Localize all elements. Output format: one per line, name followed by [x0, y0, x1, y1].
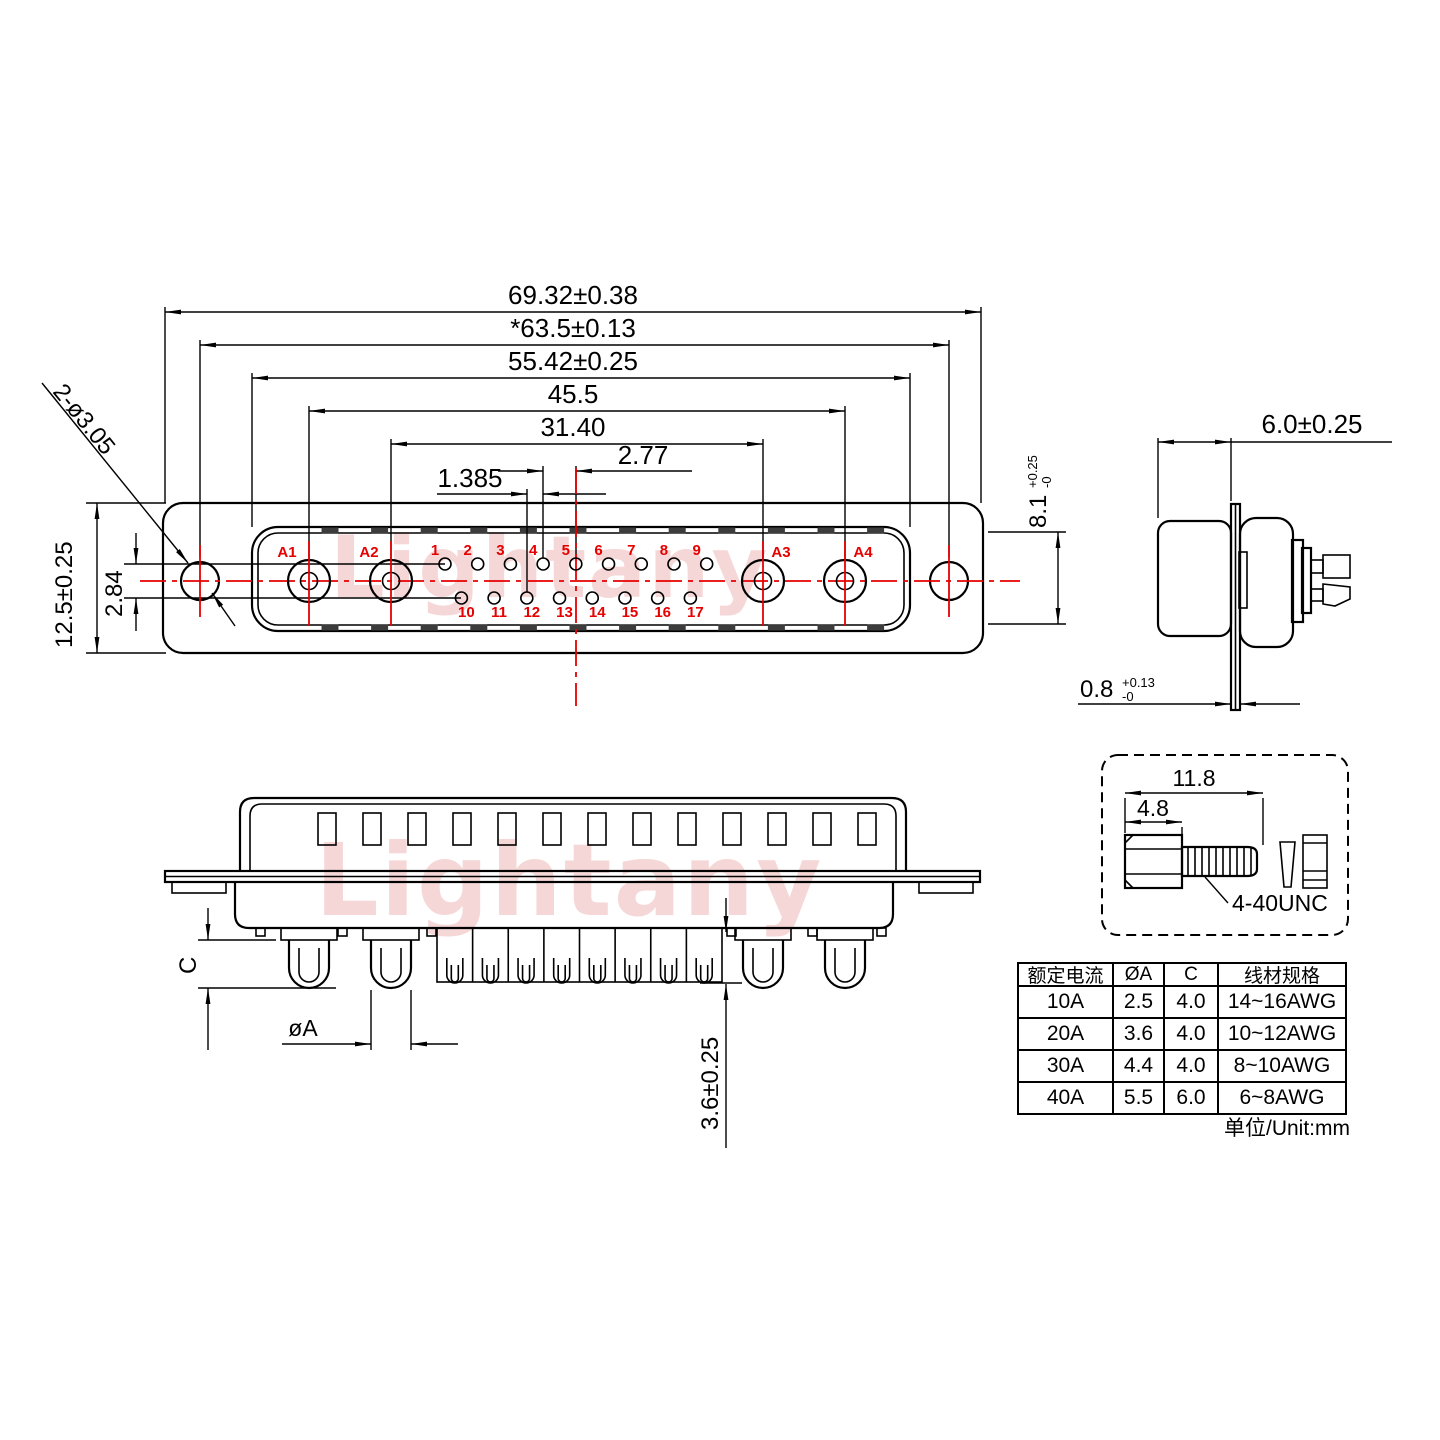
rear-signal-pin-inner	[665, 965, 672, 982]
signal-pin-bottom	[554, 592, 566, 604]
dim-overall-width: 69.32±0.38	[508, 280, 638, 310]
signal-pin-bottom	[586, 592, 598, 604]
rear-power-pin-outer	[289, 940, 329, 988]
rear-power-pins	[281, 928, 873, 988]
ground-tick-top	[421, 528, 438, 534]
base-notch	[808, 928, 817, 936]
dim-shroud-width: 55.42±0.25	[508, 346, 638, 376]
ground-tick-bottom	[619, 625, 636, 631]
ground-tick-top	[520, 528, 537, 534]
signal-pin-label-top: 7	[627, 542, 635, 559]
rear-pin-shoulder	[817, 928, 873, 940]
dim-flange-tol-plus: +0.13	[1122, 675, 1155, 690]
table-cell: 2.5	[1112, 985, 1163, 1017]
signal-pin-bottom	[652, 592, 664, 604]
table-cell: 4.0	[1163, 985, 1217, 1017]
ground-tick-bottom	[570, 625, 587, 631]
rear-hood-inner	[250, 804, 896, 871]
dim-flange-tol-minus: -0	[1122, 689, 1134, 704]
rear-signal-pin-inner	[701, 965, 708, 982]
table-header-wire: 线材规格	[1217, 964, 1345, 985]
ground-tick-top	[570, 528, 587, 534]
table-header-dia: ØA	[1112, 964, 1163, 985]
power-pin-label: A2	[359, 544, 378, 561]
signal-pin-label-bottom: 10	[458, 604, 475, 621]
rear-signal-pin-inner	[629, 965, 636, 982]
side-view: 6.0±0.25 8.1 +0.25 -0 0.8 +0.13 -0	[988, 409, 1392, 710]
ground-tick-bottom	[867, 625, 884, 631]
rear-signal-pin-inner	[523, 965, 530, 982]
rear-signal-pin-outer	[447, 958, 463, 983]
dim-power-span: 45.5	[548, 379, 599, 409]
side-shroud	[1158, 521, 1231, 636]
rear-signal-pin-inner	[451, 965, 458, 982]
dim-shroud-depth: 6.0±0.25	[1261, 409, 1362, 439]
signal-pin-label-top: 3	[496, 542, 504, 559]
rear-insert-body	[235, 882, 893, 928]
hood-slot	[813, 813, 831, 845]
signal-pin-label-top: 9	[693, 542, 701, 559]
rear-signal-pin-outer	[696, 958, 712, 983]
screw-accessory-wedge	[1280, 842, 1295, 887]
ground-tick-top	[718, 528, 735, 534]
ground-tick-top	[619, 528, 636, 534]
rear-power-pin-outer	[371, 940, 411, 988]
unit-note: 单位/Unit:mm	[1052, 1112, 1350, 1142]
signal-pin-label-top: 1	[431, 542, 439, 559]
signal-pin-label-bottom: 17	[687, 604, 704, 621]
ground-tick-bottom	[421, 625, 438, 631]
screw-thread-label: 4-40UNC	[1232, 890, 1328, 916]
shroud-outer	[252, 527, 910, 631]
hood-slot	[723, 813, 741, 845]
ground-tick-bottom	[669, 625, 686, 631]
rear-signal-pin-inner	[558, 965, 565, 982]
ground-tick-bottom	[768, 625, 785, 631]
ground-tick-bottom	[818, 625, 835, 631]
table-cell: 8~10AWG	[1217, 1049, 1345, 1081]
rear-signal-pin-outer	[589, 958, 605, 983]
signal-pin-top	[668, 558, 680, 570]
table-cell: 3.6	[1112, 1017, 1163, 1049]
rear-pin-shoulder	[363, 928, 419, 940]
dim-shroud-height-tol-minus: -0	[1039, 476, 1054, 488]
hood-slot	[363, 813, 381, 845]
base-notch	[427, 928, 436, 936]
dim-pitch: 2.77	[618, 440, 669, 470]
table-cell: 10A	[1019, 985, 1112, 1017]
screw-thread-shaft	[1182, 847, 1257, 876]
rear-power-pin-outer	[743, 940, 783, 988]
signal-pin-bottom	[488, 592, 500, 604]
dim-inner-span: 31.40	[540, 412, 605, 442]
table-cell: 5.5	[1112, 1081, 1163, 1113]
table-cell: 14~16AWG	[1217, 985, 1345, 1017]
signal-pin-label-bottom: 15	[622, 604, 639, 621]
rear-plate-tab-right	[919, 882, 973, 893]
signal-pin-label-top: 6	[594, 542, 602, 559]
shroud-inner	[258, 533, 904, 625]
ground-tick-top	[470, 528, 487, 534]
hood-slot	[498, 813, 516, 845]
table-cell: 6~8AWG	[1217, 1081, 1345, 1113]
signal-pin-label-top: 2	[464, 542, 472, 559]
ground-tick-top	[818, 528, 835, 534]
hood-slot	[543, 813, 561, 845]
hood-slot	[408, 813, 426, 845]
rear-power-pin-inner	[753, 948, 773, 982]
signal-pin-bottom	[684, 592, 696, 604]
dim-body-height: 12.5±0.25	[51, 541, 78, 648]
table-cell: 10~12AWG	[1217, 1017, 1345, 1049]
ground-tick-bottom	[718, 625, 735, 631]
dim-screw-length: 11.8	[1172, 765, 1215, 791]
technical-drawing: 69.32±0.38 *63.5±0.13 55.42±0.25 45.5 31…	[0, 0, 1440, 1440]
hood-slot	[588, 813, 606, 845]
base-notch	[256, 928, 265, 936]
rear-view: C øA 3.6±0.25	[165, 798, 980, 1148]
base-notch	[877, 928, 886, 936]
ground-tick-top	[371, 528, 388, 534]
ground-tick-bottom	[470, 625, 487, 631]
rear-pin-shoulder	[735, 928, 791, 940]
rear-power-pin-inner	[835, 948, 855, 982]
signal-pin-label-bottom: 14	[589, 604, 606, 621]
rear-signal-pin-outer	[625, 958, 641, 983]
signal-pin-label-bottom: 16	[654, 604, 671, 621]
power-pin-label: A1	[277, 544, 296, 561]
front-view: 69.32±0.38 *63.5±0.13 55.42±0.25 45.5 31…	[42, 280, 1020, 706]
dim-hole-span: *63.5±0.13	[510, 313, 636, 343]
rear-signal-pin-outer	[482, 958, 498, 983]
ground-tick-top	[768, 528, 785, 534]
power-pin-label: A4	[853, 544, 873, 561]
table-header-c: C	[1163, 964, 1217, 985]
ground-tick-top	[669, 528, 686, 534]
ground-tick-top	[322, 528, 339, 534]
rear-signal-pin-outer	[554, 958, 570, 983]
rear-pin-shoulder	[281, 928, 337, 940]
hood-slot	[318, 813, 336, 845]
ground-tick-bottom	[322, 625, 339, 631]
hood-slots	[318, 813, 876, 845]
signal-pin-top	[701, 558, 713, 570]
dim-screw-head: 4.8	[1137, 795, 1169, 821]
table-cell: 4.4	[1112, 1049, 1163, 1081]
rear-power-pin-inner	[381, 948, 401, 982]
hood-slot	[453, 813, 471, 845]
dim-pin-diameter: øA	[288, 1015, 318, 1041]
rear-power-pin-inner	[299, 948, 319, 982]
signal-pin-top	[537, 558, 549, 570]
power-pin-label: A3	[771, 544, 790, 561]
drawing-canvas: Lightany Lightany	[0, 0, 1440, 1440]
rear-power-pin-outer	[825, 940, 865, 988]
signal-pin-label-top: 4	[529, 542, 538, 559]
signal-pin-top	[603, 558, 615, 570]
signal-pin-top	[635, 558, 647, 570]
ground-tick-top	[867, 528, 884, 534]
dim-solder-tail: 3.6±0.25	[697, 1037, 724, 1130]
rear-signal-pin-outer	[518, 958, 534, 983]
dim-row-gap: 2.84	[101, 570, 128, 617]
dim-pin-length: C	[175, 957, 202, 974]
ground-tick-bottom	[371, 625, 388, 631]
rear-signal-pin-inner	[487, 965, 494, 982]
screw-detail: 11.8 4.8 4-40UNC	[1102, 755, 1348, 935]
screw-threads	[1188, 847, 1251, 876]
side-rear-body	[1240, 518, 1293, 647]
dim-shroud-height: 8.1	[1025, 495, 1052, 528]
table-cell: 4.0	[1163, 1017, 1217, 1049]
signal-pin-label-bottom: 13	[556, 604, 573, 621]
table-cell: 6.0	[1163, 1081, 1217, 1113]
signal-pin-label-bottom: 12	[523, 604, 540, 621]
table-cell: 20A	[1019, 1017, 1112, 1049]
rear-signal-pin-inner	[594, 965, 601, 982]
signal-pin-top	[504, 558, 516, 570]
hood-slot	[858, 813, 876, 845]
dim-row-offset: 1.385	[437, 463, 502, 493]
rear-signal-pin-outer	[661, 958, 677, 983]
ground-tick-bottom	[520, 625, 537, 631]
signal-pin-bottom	[619, 592, 631, 604]
table-cell: 40A	[1019, 1081, 1112, 1113]
hood-slot	[678, 813, 696, 845]
signal-pin-bottom	[521, 592, 533, 604]
signal-pin-label-bottom: 11	[491, 604, 507, 621]
table-header-current: 额定电流	[1019, 964, 1112, 985]
hood-slot	[633, 813, 651, 845]
signal-pin-label-top: 5	[562, 542, 570, 559]
hood-slot	[768, 813, 786, 845]
signal-pin-top	[472, 558, 484, 570]
screw-hex-head	[1125, 835, 1182, 888]
signal-pin-label-top: 8	[660, 542, 668, 559]
table-cell: 4.0	[1163, 1049, 1217, 1081]
dim-flange-thickness: 0.8	[1080, 676, 1113, 703]
dim-shroud-height-tol-plus: +0.25	[1025, 455, 1040, 488]
spec-table: 额定电流 ØA C 线材规格 10A2.54.014~16AWG20A3.64.…	[1017, 962, 1347, 1115]
rear-hood-outer	[240, 798, 906, 871]
rear-comb-pins	[447, 928, 712, 983]
table-cell: 30A	[1019, 1049, 1112, 1081]
rear-plate-tab-left	[172, 882, 226, 893]
dim-mount-holes: 2-ø3.05	[47, 379, 120, 460]
base-notch	[338, 928, 347, 936]
